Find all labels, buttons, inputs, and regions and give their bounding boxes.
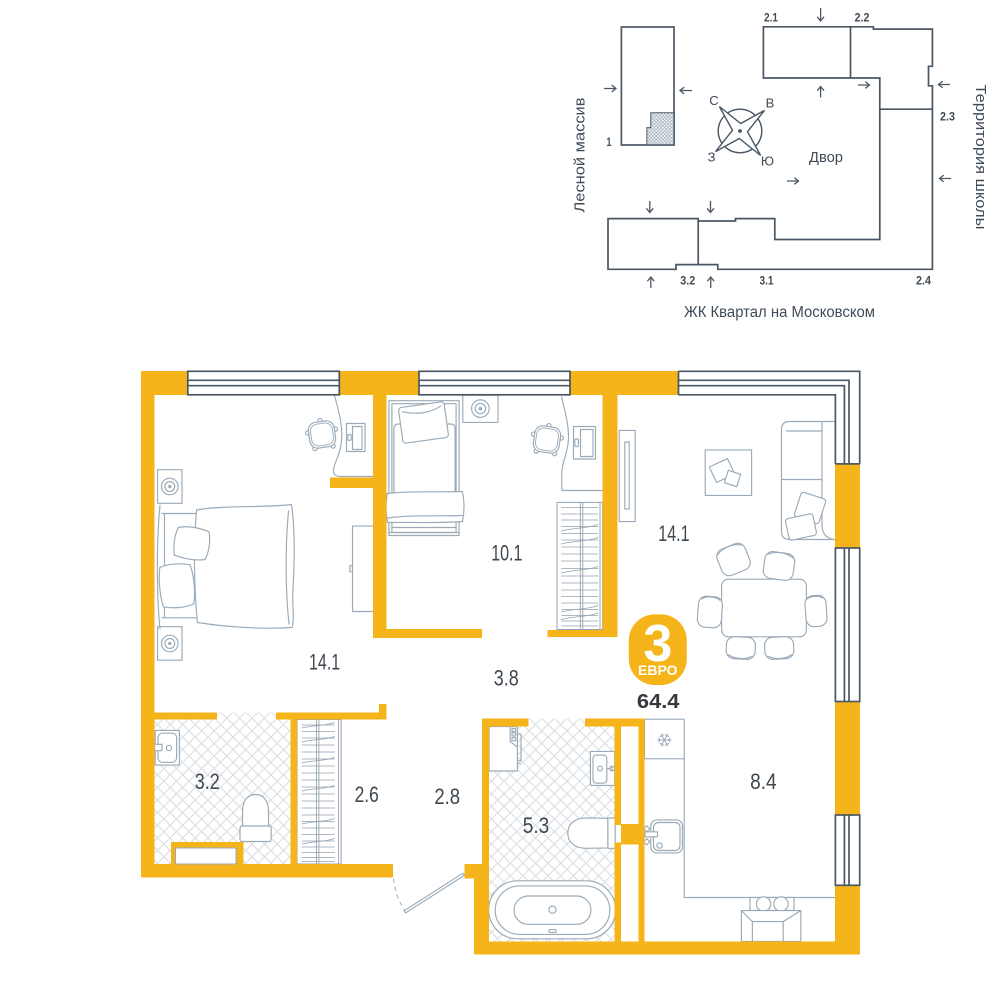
svg-text:14.1: 14.1 bbox=[658, 522, 689, 547]
svg-text:З: З bbox=[708, 150, 716, 165]
svg-text:Двор: Двор bbox=[809, 150, 843, 166]
svg-text:14.1: 14.1 bbox=[309, 651, 340, 676]
svg-text:2.4: 2.4 bbox=[916, 274, 931, 288]
svg-text:ЕВРО: ЕВРО bbox=[638, 663, 678, 678]
svg-text:2.8: 2.8 bbox=[434, 785, 460, 810]
svg-text:64.4: 64.4 bbox=[637, 691, 680, 713]
svg-text:1: 1 bbox=[607, 135, 612, 149]
svg-text:2.3: 2.3 bbox=[940, 110, 955, 124]
svg-text:Лесной массив: Лесной массив bbox=[572, 97, 589, 212]
svg-text:С: С bbox=[709, 93, 718, 108]
svg-text:В: В bbox=[766, 96, 775, 111]
svg-text:3.2: 3.2 bbox=[195, 770, 220, 795]
svg-text:Территория школы: Территория школы bbox=[972, 85, 989, 230]
svg-text:10.1: 10.1 bbox=[491, 542, 522, 567]
svg-text:2.6: 2.6 bbox=[355, 783, 379, 808]
svg-text:ЖК Квартал на Московском: ЖК Квартал на Московском bbox=[684, 304, 875, 321]
svg-text:5.3: 5.3 bbox=[523, 814, 550, 839]
svg-text:8.4: 8.4 bbox=[750, 770, 777, 795]
svg-text:3.8: 3.8 bbox=[494, 667, 519, 692]
svg-text:Ю: Ю bbox=[761, 154, 774, 169]
svg-text:3.2: 3.2 bbox=[680, 274, 695, 288]
svg-text:2.1: 2.1 bbox=[764, 11, 778, 25]
svg-text:3.1: 3.1 bbox=[760, 274, 774, 288]
svg-text:2.2: 2.2 bbox=[855, 11, 870, 25]
